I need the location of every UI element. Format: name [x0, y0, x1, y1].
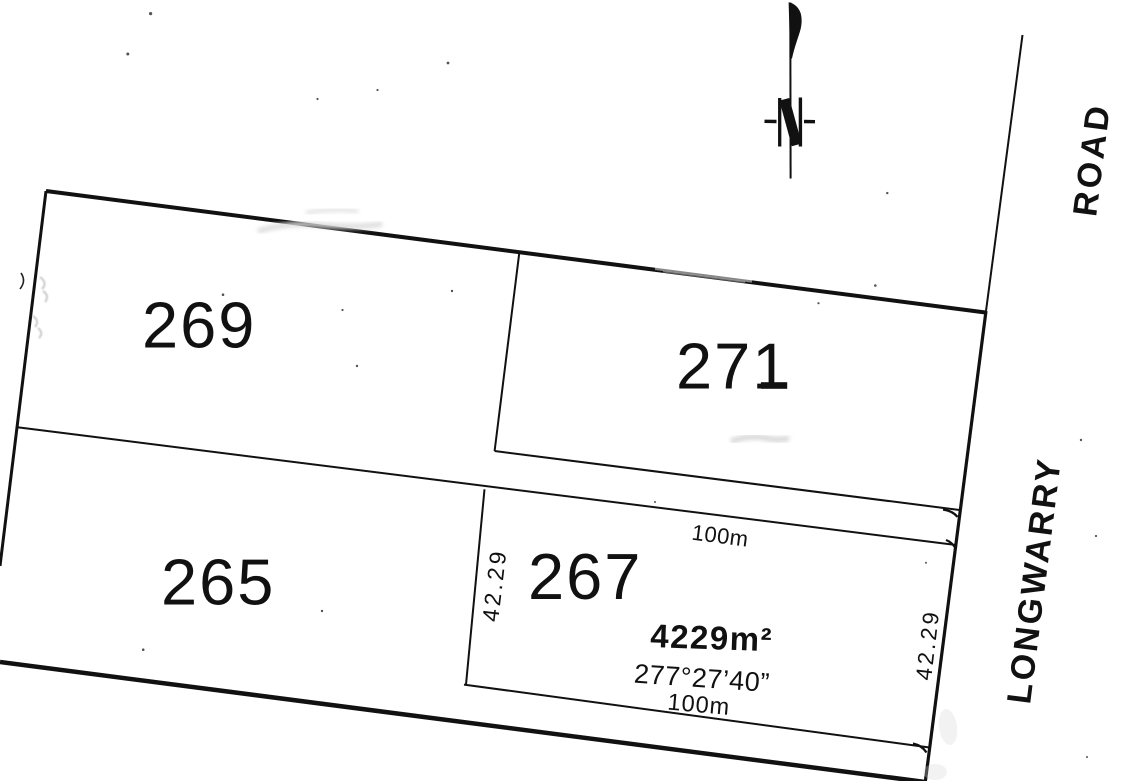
svg-text:265: 265 [161, 546, 275, 619]
svg-text:271: 271 [676, 330, 790, 403]
svg-text:100m: 100m [667, 689, 732, 720]
svg-text:4229m²: 4229m² [650, 617, 774, 658]
svg-text:267: 267 [528, 540, 642, 613]
svg-text:269: 269 [142, 289, 256, 362]
